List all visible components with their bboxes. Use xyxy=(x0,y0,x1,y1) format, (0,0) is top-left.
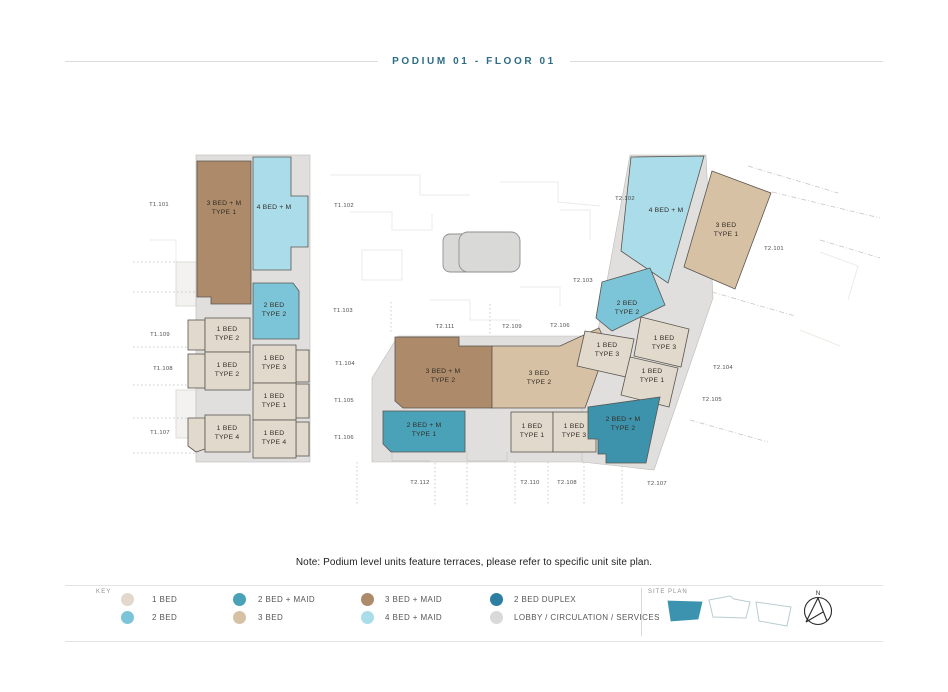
unit-1bed-type2-a: 1 BED TYPE 2 xyxy=(188,318,250,352)
ref-label-t1101: T1.101 xyxy=(149,202,169,208)
svg-text:TYPE 2: TYPE 2 xyxy=(431,377,456,384)
svg-text:3 BED + M: 3 BED + M xyxy=(207,200,242,207)
legend-rule-top xyxy=(65,585,883,586)
svg-text:TYPE 2: TYPE 2 xyxy=(527,379,552,386)
svg-text:2 BED + M: 2 BED + M xyxy=(606,416,641,423)
svg-text:TYPE 3: TYPE 3 xyxy=(652,344,677,351)
siteplan-minimap xyxy=(668,596,791,626)
legend-label-2bed-maid: 2 BED + MAID xyxy=(258,595,315,604)
svg-text:TYPE 2: TYPE 2 xyxy=(611,425,636,432)
svg-text:1 BED: 1 BED xyxy=(522,423,543,430)
legend-label-2bed-duplex: 2 BED DUPLEX xyxy=(514,595,576,604)
north-arrow: N xyxy=(805,590,832,625)
ref-label-t2106: T2.106 xyxy=(550,323,570,329)
siteplan-current-building xyxy=(668,601,702,621)
ref-label-t2111: T2.111 xyxy=(436,324,455,330)
legend-rule-bottom xyxy=(65,641,883,642)
ref-label-t2108: T2.108 xyxy=(557,480,577,486)
siteplan-building-outline xyxy=(756,602,791,626)
lobby-shapes xyxy=(443,232,520,272)
siteplan-building-outline xyxy=(709,596,750,618)
svg-text:TYPE 1: TYPE 1 xyxy=(412,431,437,438)
legend-swatch-3bed-maid xyxy=(361,593,374,606)
svg-text:TYPE 3: TYPE 3 xyxy=(595,351,620,358)
ref-label-t2110: T2.110 xyxy=(520,480,539,486)
unit-1bed-type2-b: 1 BED TYPE 2 xyxy=(188,352,250,390)
svg-text:1 BED: 1 BED xyxy=(597,342,618,349)
legend-divider xyxy=(641,588,642,636)
svg-text:TYPE 3: TYPE 3 xyxy=(562,432,587,439)
legend-key-label: KEY xyxy=(96,589,112,595)
svg-text:1 BED: 1 BED xyxy=(217,425,238,432)
svg-text:2 BED: 2 BED xyxy=(617,300,638,307)
svg-text:TYPE 1: TYPE 1 xyxy=(714,231,739,238)
page-title: PODIUM 01 - FLOOR 01 xyxy=(378,56,570,67)
title-rule-right xyxy=(570,61,883,62)
svg-text:2 BED + M: 2 BED + M xyxy=(407,422,442,429)
unit-1bed-type4-a: 1 BED TYPE 4 xyxy=(188,415,250,452)
legend-label-3bed: 3 BED xyxy=(258,613,283,622)
note-text: Note: Podium level units feature terrace… xyxy=(0,557,948,568)
svg-text:1 BED: 1 BED xyxy=(264,430,285,437)
legend-swatch-4bed-maid xyxy=(361,611,374,624)
unit-2bed-type2-left: 2 BED TYPE 2 xyxy=(253,283,299,339)
svg-text:3 BED: 3 BED xyxy=(529,370,550,377)
svg-text:3 BED: 3 BED xyxy=(716,222,737,229)
svg-text:TYPE 2: TYPE 2 xyxy=(215,371,240,378)
svg-text:1 BED: 1 BED xyxy=(654,335,675,342)
ref-label-t2103: T2.103 xyxy=(573,278,593,284)
ref-label-t1103: T1.103 xyxy=(333,308,353,314)
legend-swatch-2bed-duplex xyxy=(490,593,503,606)
lobby-shape xyxy=(459,232,520,272)
ref-label-t1106: T1.106 xyxy=(334,435,354,441)
svg-text:1 BED: 1 BED xyxy=(642,368,663,375)
ref-label-t1107: T1.107 xyxy=(150,430,170,436)
svg-text:4 BED + M: 4 BED + M xyxy=(649,207,684,214)
svg-text:1 BED: 1 BED xyxy=(564,423,585,430)
ref-label-t1104: T1.104 xyxy=(335,361,355,367)
legend-swatch-1bed xyxy=(121,593,134,606)
floor-plan: 3 BED + M TYPE 1 4 BED + M 2 BED TYPE 2 … xyxy=(0,0,948,692)
ref-label-t1109: T1.109 xyxy=(150,332,170,338)
legend-label-lobby: LOBBY / CIRCULATION / SERVICES xyxy=(514,613,660,622)
svg-text:1 BED: 1 BED xyxy=(264,393,285,400)
unit-1bed-type4-b: 1 BED TYPE 4 xyxy=(253,420,309,458)
siteplan-label: SITE PLAN xyxy=(648,589,688,595)
svg-text:4 BED + M: 4 BED + M xyxy=(257,204,292,211)
ref-label-t2107: T2.107 xyxy=(647,481,667,487)
svg-text:TYPE 3: TYPE 3 xyxy=(262,364,287,371)
ref-label-t1108: T1.108 xyxy=(153,366,173,372)
legend-swatch-2bed-maid xyxy=(233,593,246,606)
legend-swatch-lobby xyxy=(490,611,503,624)
north-label: N xyxy=(816,590,821,597)
ref-label-t2104: T2.104 xyxy=(713,365,733,371)
page: { "title": "PODIUM 01 - FLOOR 01", "note… xyxy=(0,0,948,692)
unit-3bed-maid-type2-mid: 3 BED + M TYPE 2 xyxy=(395,337,492,408)
svg-text:TYPE 2: TYPE 2 xyxy=(262,311,287,318)
ref-label-t2105: T2.105 xyxy=(702,397,722,403)
svg-text:TYPE 1: TYPE 1 xyxy=(262,402,287,409)
svg-text:2 BED: 2 BED xyxy=(264,302,285,309)
svg-text:TYPE 4: TYPE 4 xyxy=(215,434,240,441)
ref-label-t2101: T2.101 xyxy=(764,246,784,252)
svg-text:1 BED: 1 BED xyxy=(264,355,285,362)
legend-swatch-2bed xyxy=(121,611,134,624)
ref-label-t2112: T2.112 xyxy=(410,480,429,486)
unit-1bed-type3-left: 1 BED TYPE 3 xyxy=(253,345,309,383)
legend-label-4bed-maid: 4 BED + MAID xyxy=(385,613,442,622)
svg-text:TYPE 1: TYPE 1 xyxy=(520,432,545,439)
unit-2bed-maid-type1-mid: 2 BED + M TYPE 1 xyxy=(383,411,465,452)
svg-text:TYPE 2: TYPE 2 xyxy=(615,309,640,316)
svg-text:1 BED: 1 BED xyxy=(217,326,238,333)
legend-label-3bed-maid: 3 BED + MAID xyxy=(385,595,442,604)
svg-text:TYPE 1: TYPE 1 xyxy=(640,377,665,384)
title-rule-left xyxy=(65,61,378,62)
unit-1bed-type1-mid: 1 BED TYPE 1 xyxy=(511,412,553,452)
page-header: PODIUM 01 - FLOOR 01 xyxy=(65,56,883,67)
svg-text:3 BED + M: 3 BED + M xyxy=(426,368,461,375)
svg-text:1 BED: 1 BED xyxy=(217,362,238,369)
legend-swatch-3bed xyxy=(233,611,246,624)
ref-label-t2109: T2.109 xyxy=(502,324,522,330)
svg-text:TYPE 1: TYPE 1 xyxy=(212,209,237,216)
svg-text:TYPE 2: TYPE 2 xyxy=(215,335,240,342)
ref-label-t2102: T2.102 xyxy=(615,196,635,202)
legend-label-1bed: 1 BED xyxy=(152,595,177,604)
legend-label-2bed: 2 BED xyxy=(152,613,177,622)
ref-label-t1105: T1.105 xyxy=(334,398,354,404)
svg-text:TYPE 4: TYPE 4 xyxy=(262,439,287,446)
unit-3bed-maid-type1-left: 3 BED + M TYPE 1 xyxy=(197,161,251,304)
ref-label-t1102: T1.102 xyxy=(334,203,354,209)
unit-1bed-type1-left: 1 BED TYPE 1 xyxy=(253,383,309,420)
